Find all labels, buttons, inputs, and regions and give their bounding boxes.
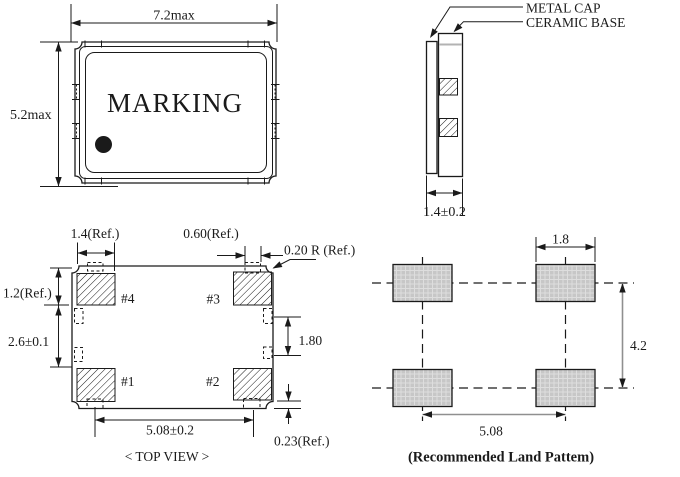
dim-corner-radius: 0.20 R (Ref.) xyxy=(271,243,355,272)
dim-castellation-0-60: 0.60(Ref.) xyxy=(183,226,283,262)
arrowhead xyxy=(71,20,81,26)
arrowhead xyxy=(427,190,437,196)
land-pattern-view: 1.8 4.2 5.08 (Recommended Land Pattem) xyxy=(372,232,647,466)
land-pad-top-left xyxy=(393,265,452,302)
dim-thickness-1-4: 1.4±0.2 xyxy=(423,176,466,221)
dim-pad-height-text: 1.2(Ref.) xyxy=(3,286,52,301)
arrowhead xyxy=(285,409,291,419)
pin1-dot xyxy=(95,136,112,153)
arrowhead xyxy=(244,417,254,423)
arrowhead xyxy=(55,268,61,278)
arrowhead xyxy=(78,250,88,256)
dim-pad-pitch-5-08: 5.08±0.2 xyxy=(95,407,254,438)
dim-pad-gap-text: 2.6±0.1 xyxy=(8,334,49,349)
dim-corner-radius-text: 0.20 R (Ref.) xyxy=(284,243,355,258)
extension-lines xyxy=(78,243,115,272)
dim-pad-gap-2-6: 2.6±0.1 xyxy=(8,305,72,367)
arrowhead xyxy=(619,379,625,389)
pad-3-label: #3 xyxy=(207,292,221,307)
arrowhead xyxy=(586,244,596,250)
arrowhead xyxy=(271,261,282,271)
ceramic-base-label: CERAMIC BASE xyxy=(526,15,625,30)
leader-line xyxy=(455,22,524,31)
arrowhead xyxy=(55,177,61,187)
arrowhead xyxy=(105,250,115,256)
pad-1 xyxy=(77,369,115,402)
arrowhead xyxy=(619,283,625,293)
pad-4 xyxy=(77,274,115,306)
ceramic-base-callout: CERAMIC BASE xyxy=(451,15,625,35)
tick-lines xyxy=(274,401,301,409)
pad-3 xyxy=(234,272,272,305)
arrowhead xyxy=(236,252,246,258)
dim-side-pitch-1-80: 1.80 xyxy=(274,317,322,356)
castellation-right-upper xyxy=(264,309,273,324)
dim-width-7-2: 7.2max xyxy=(71,4,277,42)
marking-label: MARKING xyxy=(107,88,243,118)
arrowhead xyxy=(427,28,438,39)
arrowhead xyxy=(55,42,61,52)
pad-2 xyxy=(234,369,272,401)
package-drawing-page: MARKING 7.2max 5.2max METAL CAP xyxy=(0,0,680,477)
dim-thickness-text: 1.4±0.2 xyxy=(423,205,466,220)
side-view: METAL CAP CERAMIC BASE 1.4±0.2 xyxy=(423,1,625,221)
arrowhead xyxy=(285,346,291,356)
dim-row-pitch-text: 4.2 xyxy=(630,338,647,353)
pad-2-label: #2 xyxy=(206,374,220,389)
pad-1-label: #1 xyxy=(121,374,135,389)
arrowhead xyxy=(423,411,433,417)
extension-lines xyxy=(245,246,261,262)
arrowhead xyxy=(285,392,291,402)
land-pad-bottom-right xyxy=(536,370,595,407)
arrowhead xyxy=(55,306,61,316)
arrowhead xyxy=(268,20,278,26)
arrowhead xyxy=(285,317,291,327)
dim-height-text: 5.2max xyxy=(10,108,52,123)
land-pattern-caption: (Recommended Land Pattem) xyxy=(408,450,594,466)
metal-cap-label: METAL CAP xyxy=(526,1,601,16)
dim-col-pitch-5-08: 5.08 xyxy=(423,411,566,438)
dim-pad-width-1-4: 1.4(Ref.) xyxy=(71,226,120,271)
front-view: MARKING 7.2max 5.2max xyxy=(10,4,280,187)
side-pad-upper xyxy=(440,79,458,96)
dim-col-pitch-text: 5.08 xyxy=(479,424,503,439)
metal-cap-outline xyxy=(427,42,438,174)
castellation-top-right xyxy=(245,263,261,274)
castellation-right-lower xyxy=(264,347,273,359)
castellation-left-upper xyxy=(75,309,84,324)
top-view: #4 #3 #1 #2 1.4(Ref.) 0.60(Ref.) xyxy=(3,226,355,464)
dim-edge-offset-text: 0.23(Ref.) xyxy=(274,434,329,449)
dim-height-5-2: 5.2max xyxy=(10,42,118,187)
arrowhead xyxy=(556,411,566,417)
dim-castellation-text: 0.60(Ref.) xyxy=(183,226,238,241)
ceramic-base-outline xyxy=(439,34,463,177)
drawing-canvas: MARKING 7.2max 5.2max METAL CAP xyxy=(0,0,680,477)
dim-land-pad-width-text: 1.8 xyxy=(552,232,569,247)
dim-side-pitch-text: 1.80 xyxy=(299,333,323,348)
dim-width-text: 7.2max xyxy=(153,9,195,24)
dim-pad-width-text: 1.4(Ref.) xyxy=(71,226,120,241)
arrowhead xyxy=(453,190,463,196)
side-pad-lower xyxy=(440,119,458,137)
arrowhead xyxy=(261,252,271,258)
castellation-left-lower xyxy=(75,348,83,362)
dim-row-pitch-4-2: 4.2 xyxy=(619,283,647,388)
top-view-caption: < TOP VIEW > xyxy=(125,449,210,464)
arrowhead xyxy=(55,358,61,368)
pad-4-label: #4 xyxy=(121,291,135,306)
land-pad-top-right xyxy=(536,265,595,302)
dim-edge-offset-0-23: 0.23(Ref.) xyxy=(274,384,329,449)
dim-pad-height-1-2: 1.2(Ref.) xyxy=(3,268,72,305)
dim-pad-pitch-text: 5.08±0.2 xyxy=(146,423,194,438)
arrowhead xyxy=(536,244,546,250)
arrowhead xyxy=(95,417,105,423)
land-pad-bottom-left xyxy=(393,370,452,407)
arrowhead xyxy=(55,296,61,306)
castellation-top-left xyxy=(88,263,104,272)
